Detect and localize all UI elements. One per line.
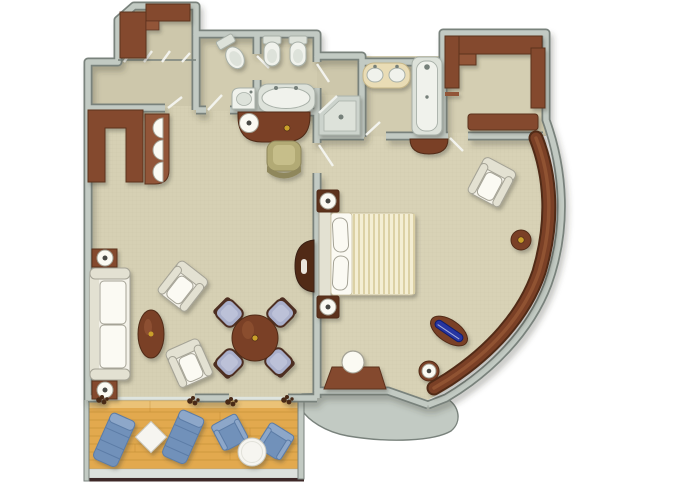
- nightstand-top: [317, 190, 339, 212]
- wardrobe-cabinet-notch: [146, 21, 159, 30]
- sofa-side-table-top: [92, 249, 117, 267]
- floor-plan: [0, 0, 680, 486]
- round-table: [238, 438, 266, 466]
- pillow: [332, 256, 349, 291]
- nightstand-bottom: [317, 296, 339, 318]
- pillow: [332, 218, 349, 253]
- writing-desk: [238, 112, 310, 142]
- double-sink-vanity: [363, 63, 410, 88]
- headboard: [319, 212, 331, 296]
- wall-hung-toilet: [263, 36, 281, 66]
- wardrobe-cabinet-vertical: [120, 12, 146, 58]
- dressing-stool: [342, 351, 364, 373]
- bathtub: [412, 57, 442, 135]
- closet-cabinet-step: [458, 54, 476, 65]
- table-lamp: [97, 382, 113, 398]
- closet-tall-cabinet: [445, 36, 459, 88]
- closet-side-cabinet: [531, 48, 545, 108]
- balcony-railing: [84, 478, 304, 482]
- bedside-lamp: [320, 299, 336, 315]
- bedside-lamp: [320, 193, 336, 209]
- closet-bench: [468, 114, 538, 130]
- sofa: [90, 268, 130, 380]
- floor-plan-canvas: [0, 0, 680, 486]
- brass-knob: [511, 230, 531, 250]
- ledge-lamp: [419, 361, 439, 381]
- table-lamp: [97, 250, 113, 266]
- bar-stools: [153, 118, 163, 182]
- whirlpool-tub: [258, 84, 315, 112]
- corner-basin: [232, 88, 255, 109]
- balcony-rail-band: [84, 469, 304, 478]
- oval-coffee-table: [138, 310, 164, 358]
- closet-shelf: [445, 92, 459, 96]
- double-bed: [319, 212, 415, 296]
- balcony-right-wall: [298, 401, 304, 479]
- wardrobe-cabinet-horizontal: [146, 4, 190, 21]
- closet-upper-cabinet: [458, 36, 542, 54]
- desk-knob: [284, 125, 290, 131]
- bidet: [289, 36, 307, 66]
- sofa-side-table-bottom: [92, 381, 117, 399]
- balcony-left-wall: [84, 398, 89, 481]
- duvet-stripes: [354, 214, 414, 294]
